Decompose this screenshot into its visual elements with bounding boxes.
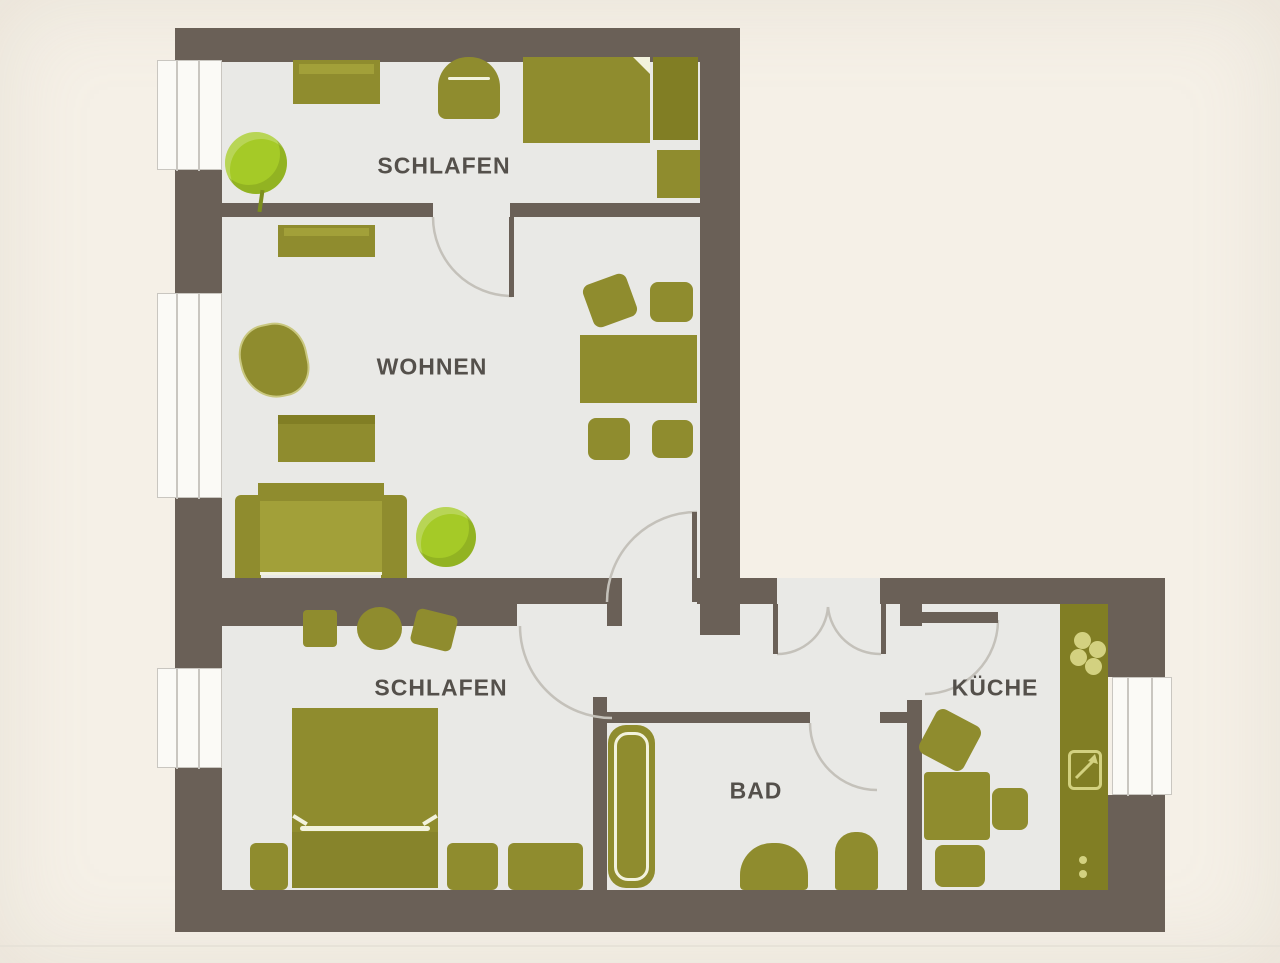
dining-table <box>580 335 697 403</box>
armchair-schlafen-top <box>438 57 500 119</box>
door-leaf-entrance-left <box>773 604 778 654</box>
counter-dots-icon <box>1079 856 1087 864</box>
vanity-table <box>303 610 337 647</box>
sideboard <box>278 225 375 257</box>
door-arc-schlafen-bottom <box>520 626 612 718</box>
door-leaf-schlafen-top <box>509 217 514 297</box>
bed-mattress <box>523 57 650 143</box>
bed-schlafen-bottom <box>292 708 438 888</box>
room-label-bad: BAD <box>730 778 783 805</box>
dining-chair-se <box>652 420 693 458</box>
stove-burners-icon <box>1089 641 1106 658</box>
room-label-schlafen-bottom: SCHLAFEN <box>374 675 507 702</box>
door-leaf-entrance-right <box>881 604 886 654</box>
dining-chair-sw <box>588 418 630 460</box>
bed-duvet-line <box>300 826 430 831</box>
sink-icon <box>1068 750 1102 790</box>
room-label-wohnen: WOHNEN <box>377 354 488 381</box>
room-label-kueche: KÜCHE <box>952 675 1039 702</box>
sofa-arm-right <box>381 495 407 578</box>
door-leaf-kueche <box>922 612 998 623</box>
sofa-arm-left <box>235 495 261 578</box>
counter-dots-icon <box>1079 870 1087 878</box>
kitchen-chair-bottom <box>935 845 985 887</box>
bed-pillow-strip <box>653 57 698 140</box>
door-arc-entrance-right <box>828 607 881 654</box>
dining-chair-ne <box>650 282 693 322</box>
photo-edge-line <box>0 945 1280 947</box>
door-arc-entrance-left <box>777 607 828 654</box>
kitchen-counter <box>1060 604 1108 890</box>
room-label-schlafen-top: SCHLAFEN <box>377 153 510 180</box>
sink-basin <box>835 832 878 890</box>
wardrobe-mid <box>447 843 498 890</box>
tv-board <box>278 415 375 462</box>
stove-burners-icon <box>1085 658 1102 675</box>
dresser <box>293 60 380 104</box>
door-arc-schlafen-top <box>433 217 512 296</box>
door-arc-wohnen <box>607 512 697 602</box>
wardrobe-right <box>508 843 583 890</box>
plant-wohnen <box>416 507 476 567</box>
sofa-seat <box>260 501 382 575</box>
kitchen-table <box>924 772 990 840</box>
door-arc-bad <box>810 723 877 790</box>
kitchen-chair-right <box>992 788 1028 830</box>
floor-plan: SCHLAFEN WOHNEN SCHLAFEN BAD KÜCHE <box>0 0 1280 963</box>
wardrobe-left <box>250 843 288 890</box>
nightstand <box>657 150 700 198</box>
vanity-stool <box>357 607 402 650</box>
door-leaf-wohnen <box>692 512 697 602</box>
sofa <box>235 483 407 578</box>
bed-schlafen-top <box>523 57 698 143</box>
plant-schlafen-top <box>225 132 287 194</box>
bathtub <box>608 725 655 888</box>
